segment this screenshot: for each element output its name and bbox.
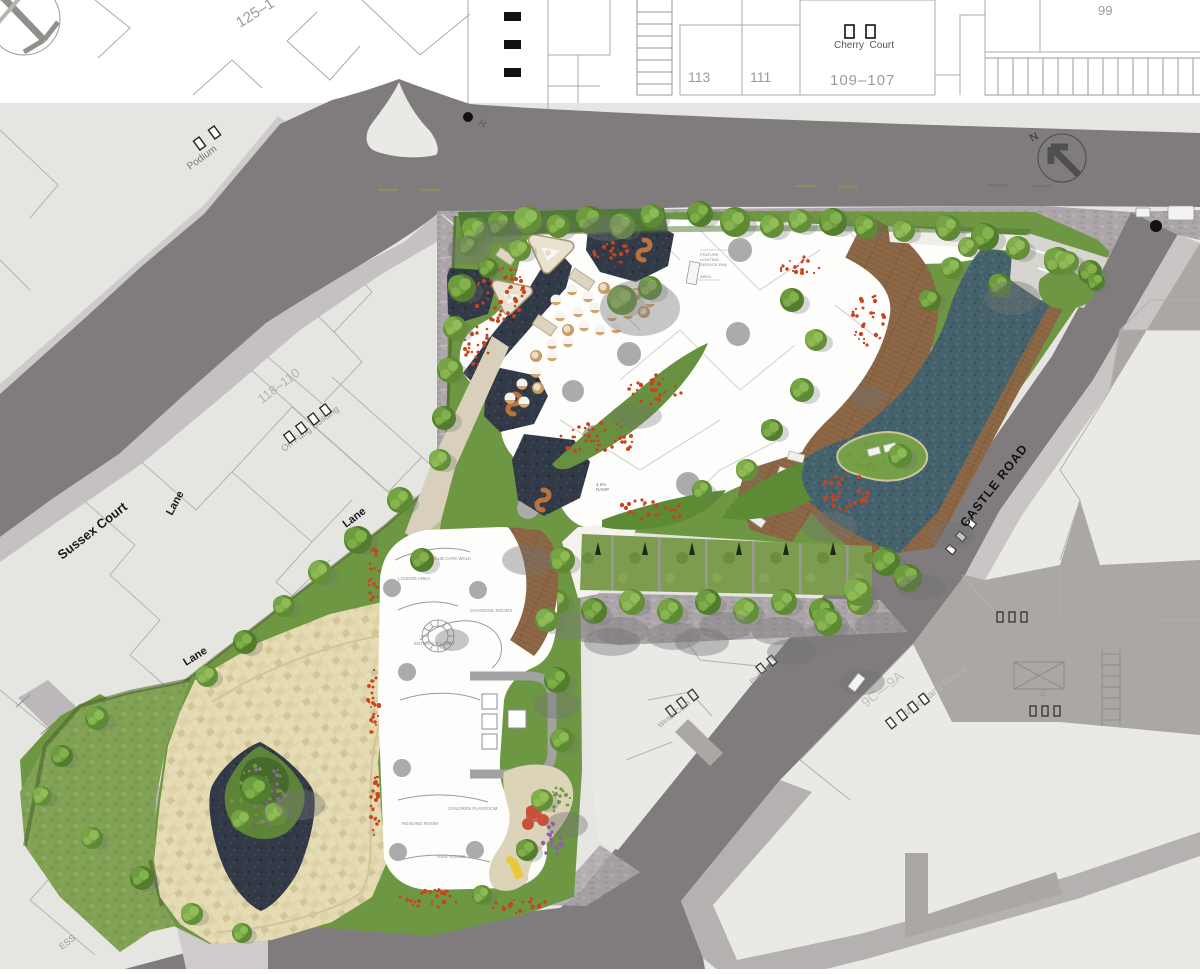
svg-text:Cherry Court: Cherry Court xyxy=(834,40,894,51)
svg-text:109–107: 109–107 xyxy=(830,72,895,89)
svg-text:RAMP: RAMP xyxy=(596,487,609,492)
svg-text:LOUNGE AREA: LOUNGE AREA xyxy=(398,576,430,581)
svg-text:AREA: AREA xyxy=(700,274,711,279)
svg-text:CHANGING ROOMS: CHANGING ROOMS xyxy=(470,608,513,613)
svg-text:SERVICE PAN: SERVICE PAN xyxy=(700,262,727,267)
svg-text:113: 113 xyxy=(688,69,711,85)
svg-text:4: 4 xyxy=(1039,687,1046,701)
svg-text:CHILDREN PLAYROOM: CHILDREN PLAYROOM xyxy=(448,806,498,811)
svg-text:TREE HOUSE: TREE HOUSE xyxy=(436,854,465,859)
svg-text:111: 111 xyxy=(750,69,771,85)
svg-text:READING ROOM: READING ROOM xyxy=(402,821,438,826)
svg-text:99: 99 xyxy=(1098,3,1112,18)
